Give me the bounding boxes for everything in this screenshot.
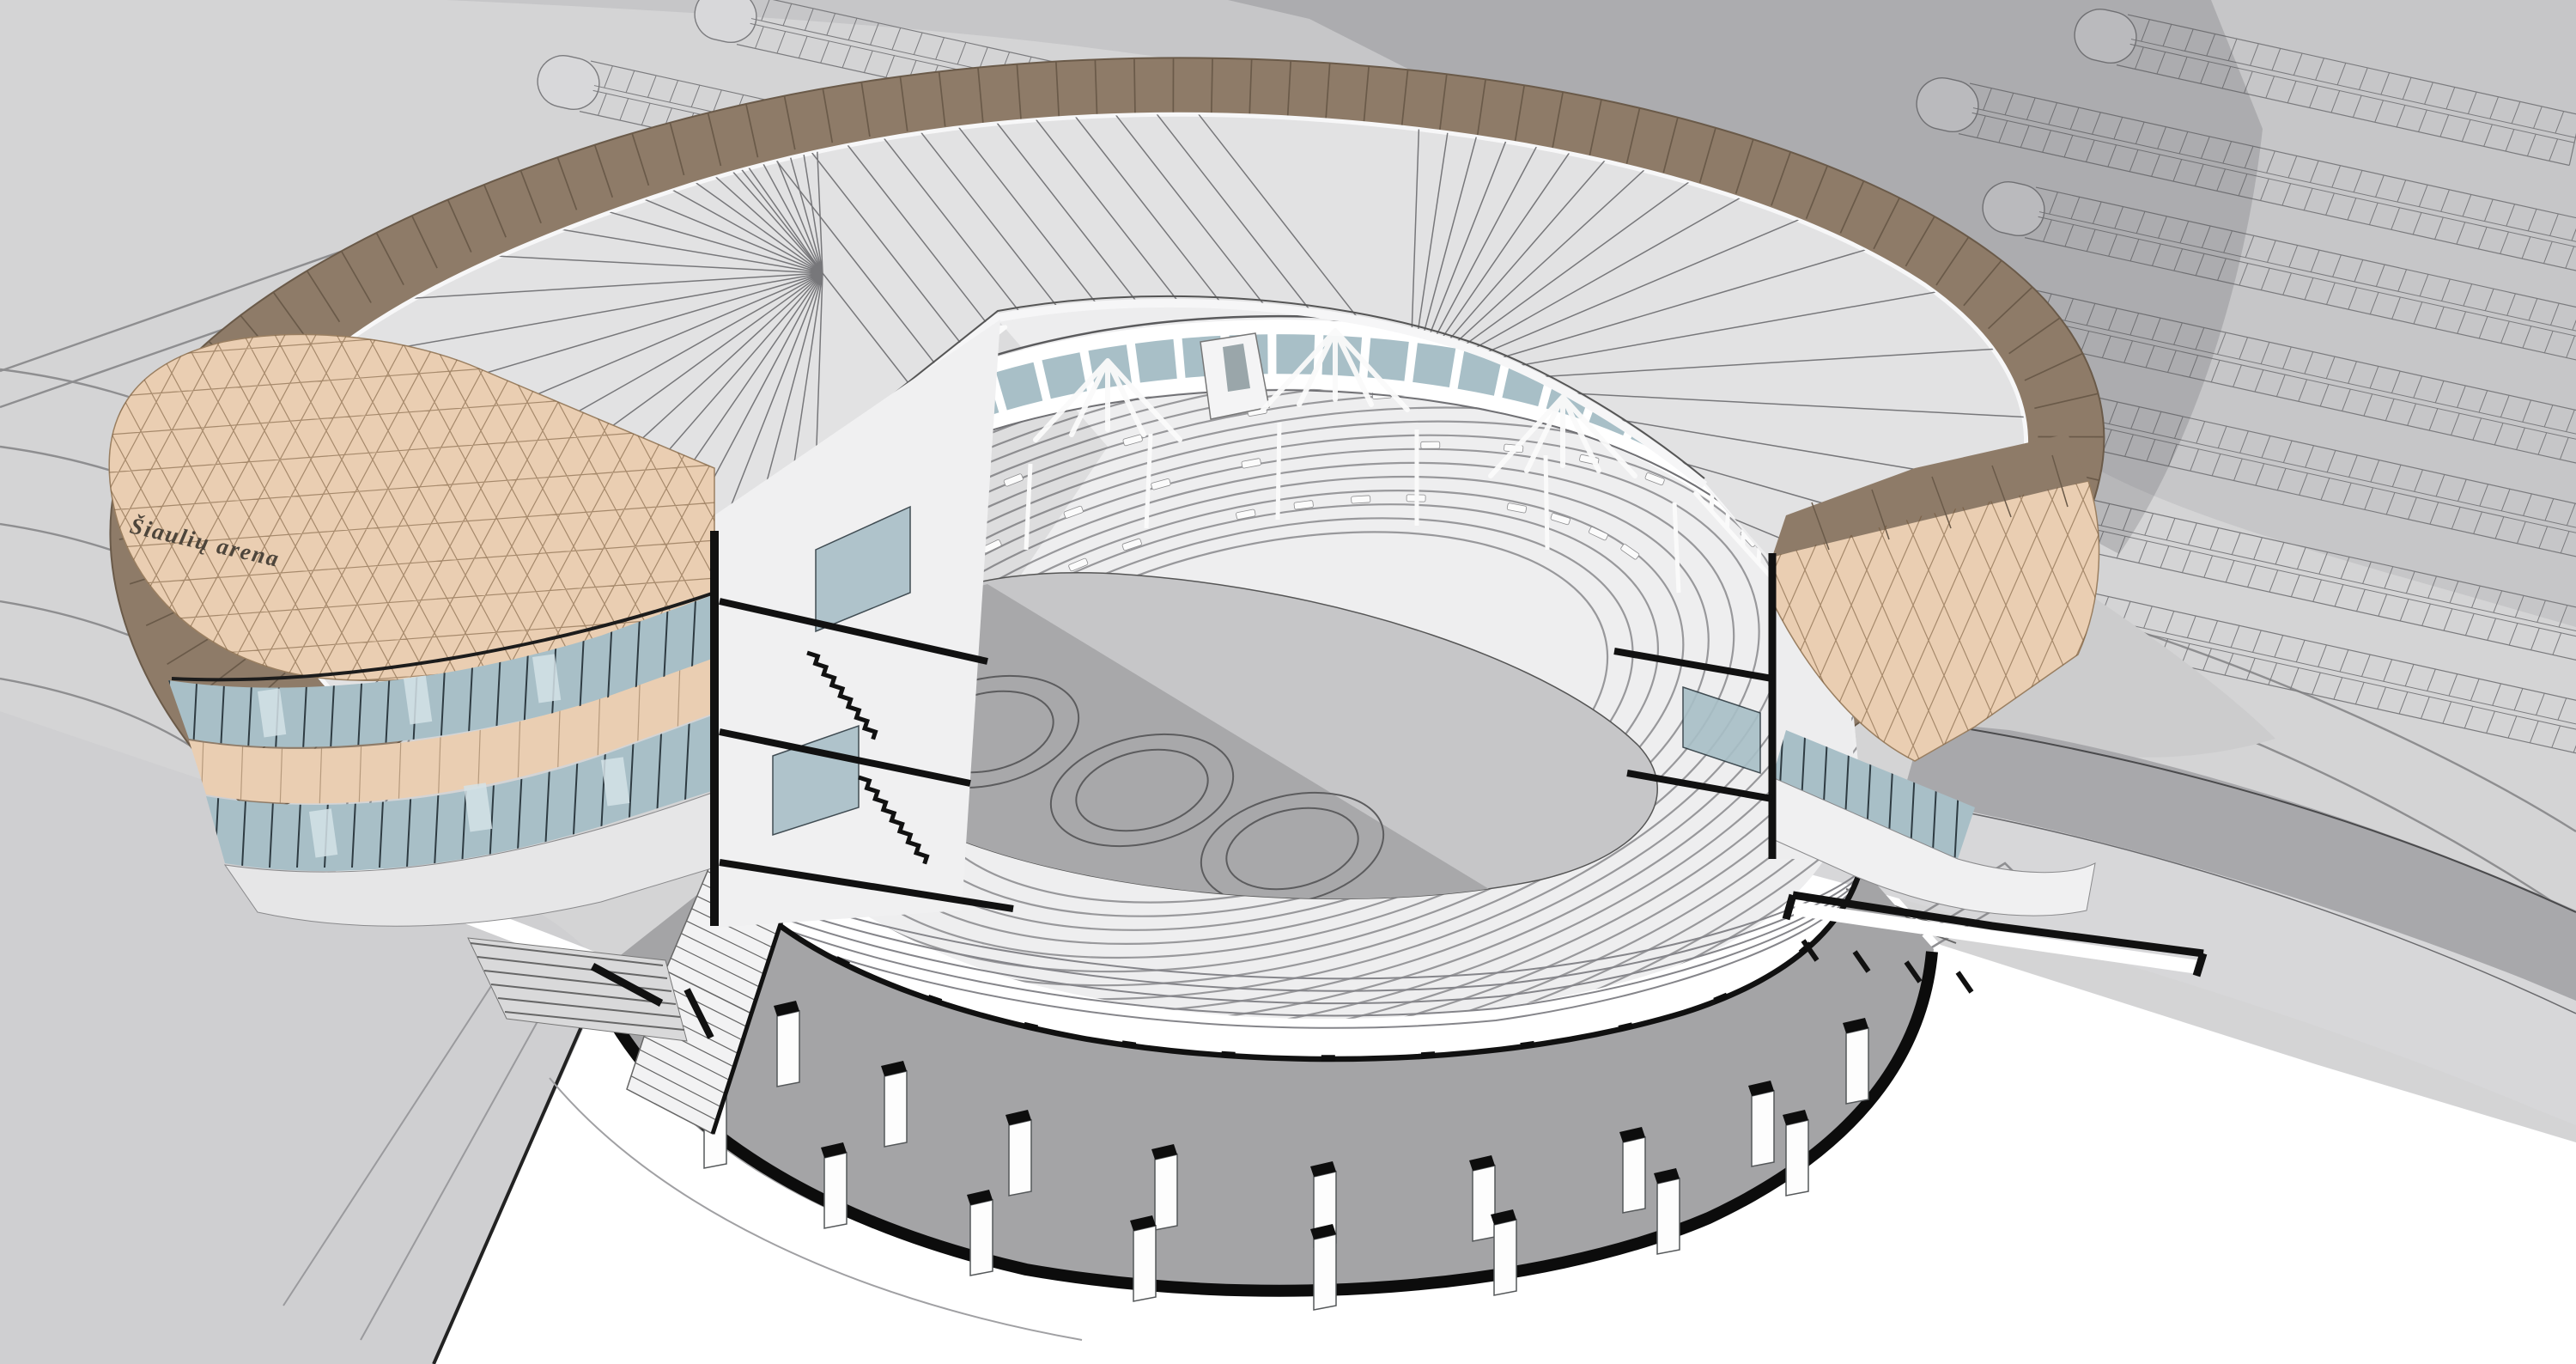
foyer-column [967, 1190, 993, 1276]
arena-cutaway-scene: Šiaulių arena [0, 0, 2576, 1364]
foyer-column [821, 1142, 847, 1228]
foyer-column [1619, 1127, 1645, 1213]
foyer-column [1310, 1224, 1336, 1310]
foyer-column [1748, 1081, 1774, 1166]
foyer-column [1491, 1209, 1516, 1295]
architectural-rendering: Šiaulių arena [0, 0, 2576, 1364]
seat-block [1421, 441, 1440, 448]
foyer-column [1005, 1110, 1031, 1196]
foyer-column [1130, 1215, 1156, 1301]
foyer-column [1654, 1168, 1680, 1254]
foyer-column [1469, 1155, 1495, 1241]
foyer-column [774, 1001, 799, 1087]
seat-block [1352, 496, 1370, 503]
foyer-column [1783, 1110, 1808, 1196]
foyer-column [1151, 1144, 1177, 1230]
foyer-column [1843, 1018, 1868, 1104]
foyer-column [881, 1061, 907, 1147]
